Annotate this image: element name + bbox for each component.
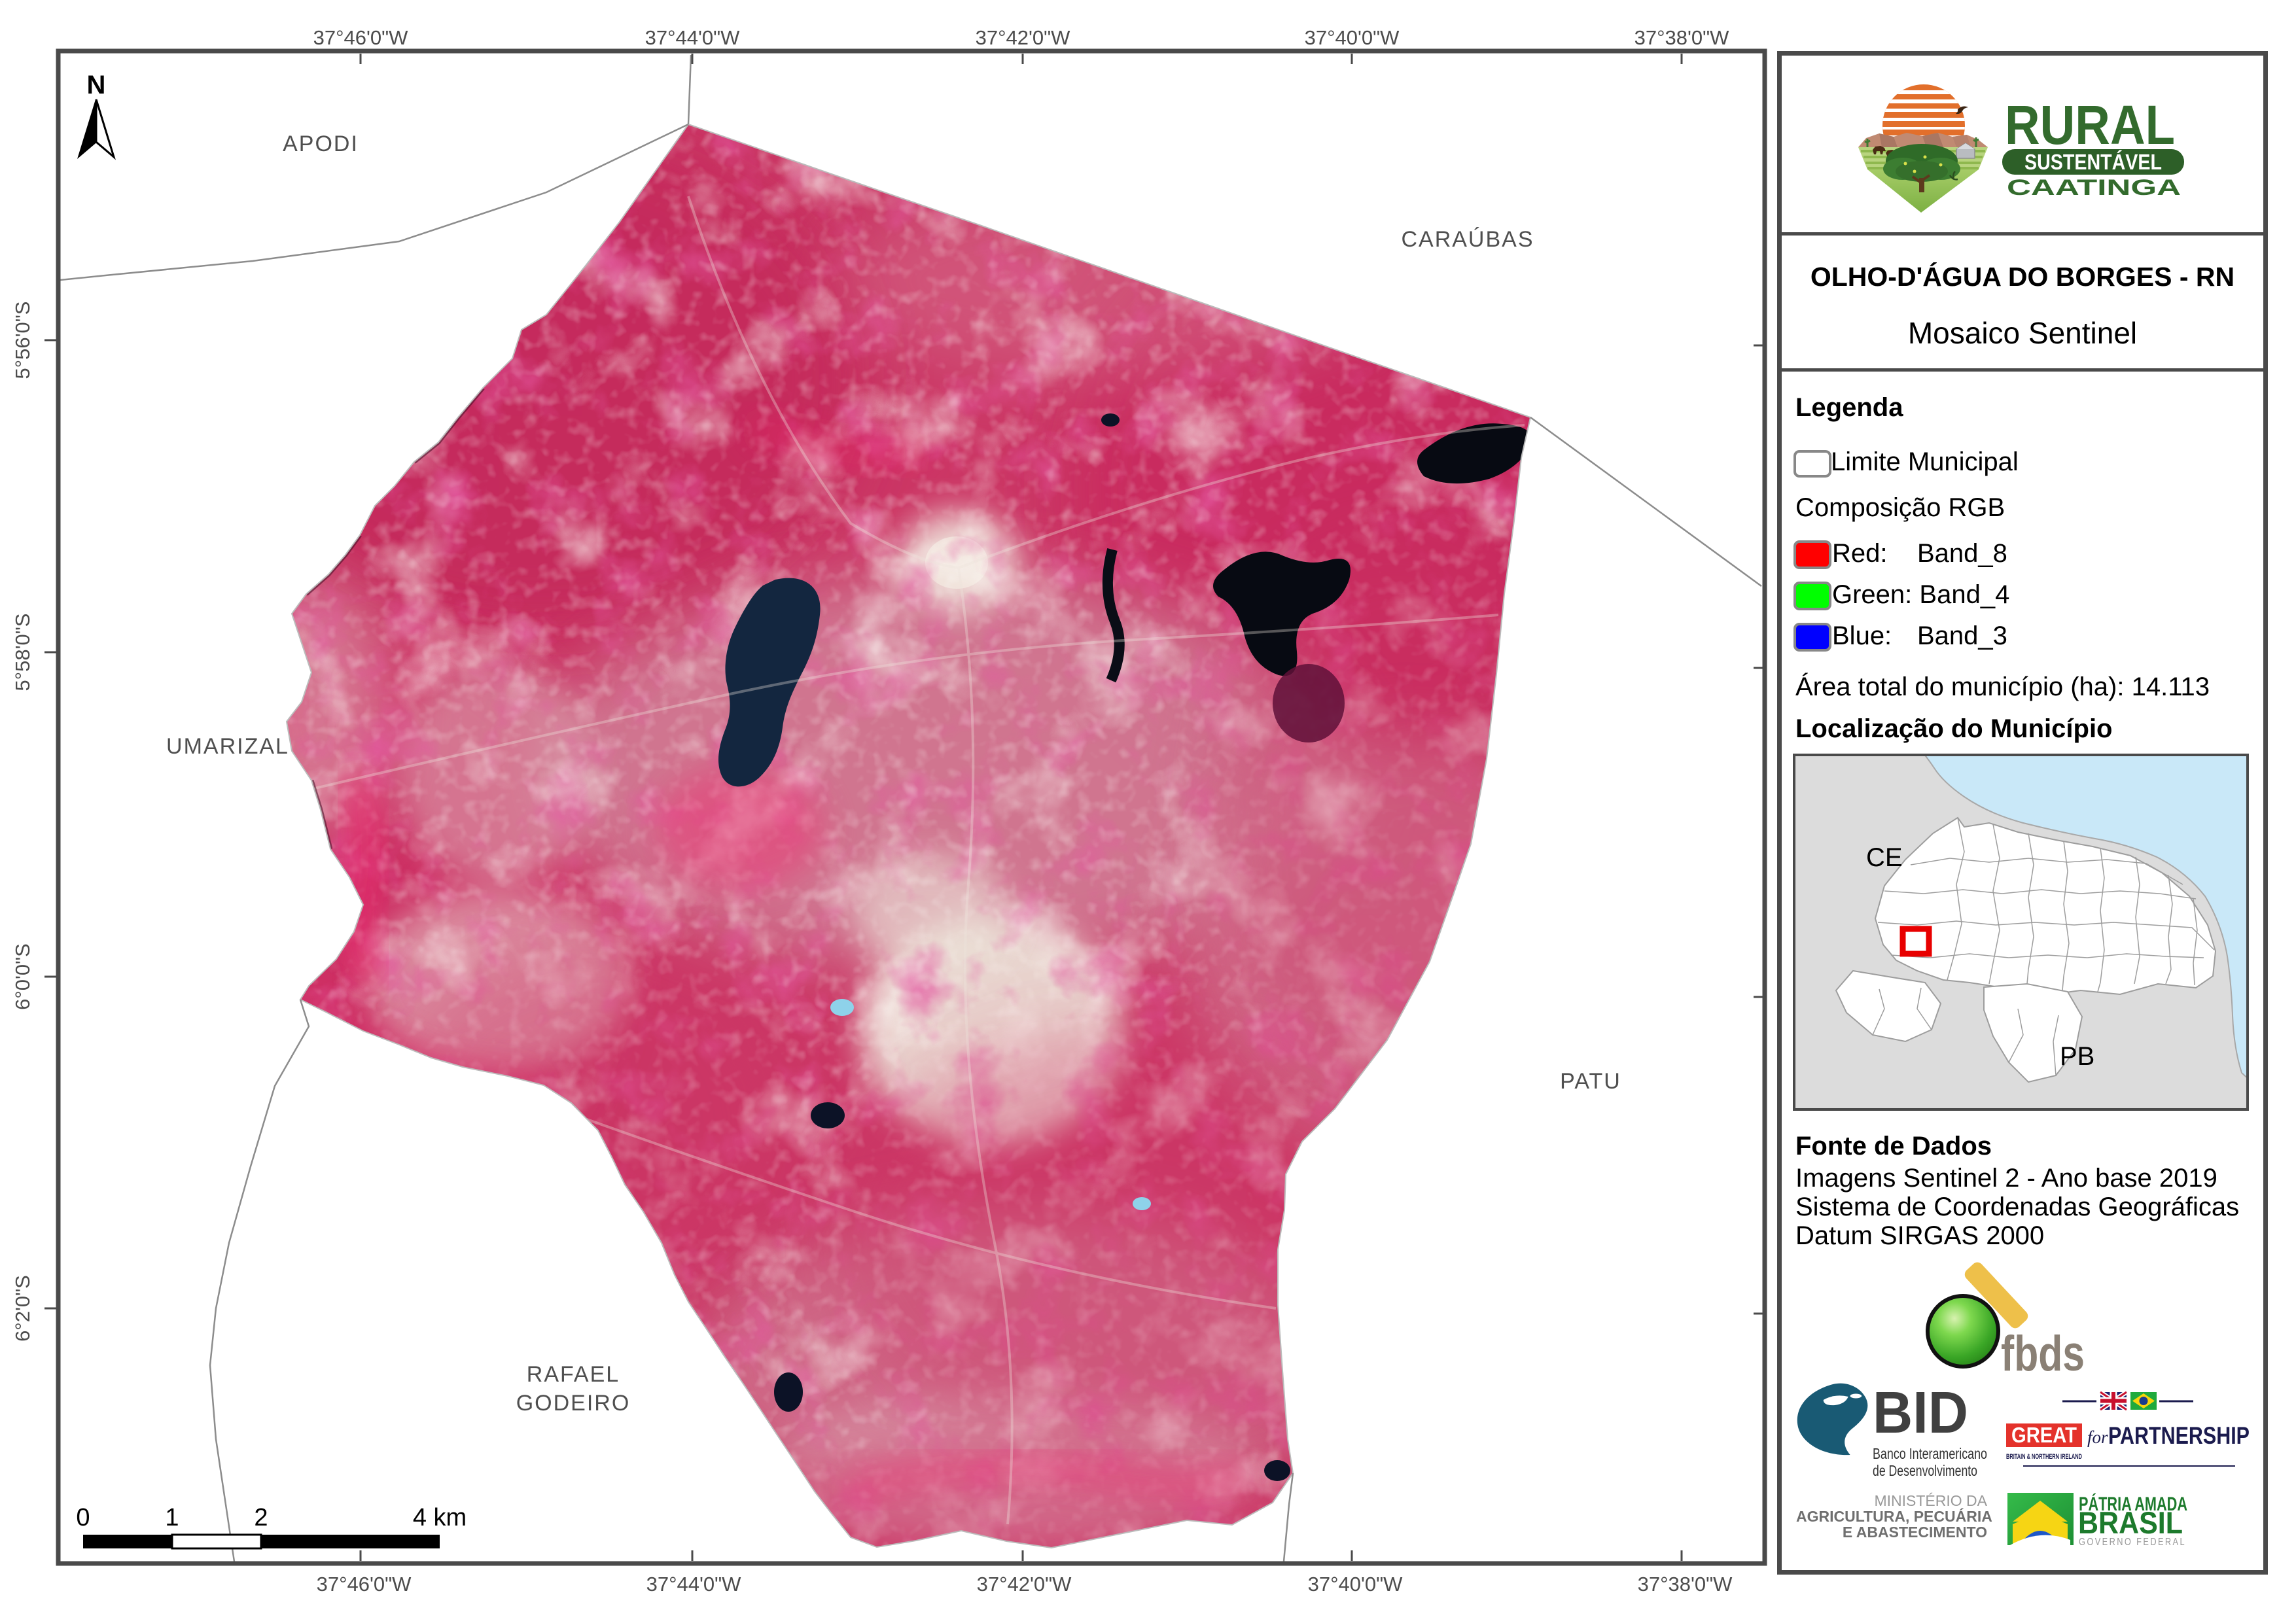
svg-text:PB: PB (2060, 1042, 2094, 1071)
svg-text:37°40'0"W: 37°40'0"W (1308, 1573, 1404, 1596)
svg-text:5°58'0"S: 5°58'0"S (11, 614, 34, 691)
svg-text:GREAT: GREAT (2011, 1423, 2077, 1447)
svg-text:37°38'0"W: 37°38'0"W (1634, 26, 1730, 49)
svg-text:37°44'0"W: 37°44'0"W (646, 1573, 742, 1596)
svg-text:for: for (2087, 1427, 2108, 1447)
svg-text:BRITAIN & NORTHERN IRELAND: BRITAIN & NORTHERN IRELAND (2006, 1453, 2082, 1461)
svg-text:CAATINGA: CAATINGA (2007, 175, 2181, 200)
svg-text:1: 1 (165, 1504, 179, 1531)
svg-text:0: 0 (76, 1504, 90, 1531)
svg-text:37°44'0"W: 37°44'0"W (645, 26, 741, 49)
svg-text:GOVERNO FEDERAL: GOVERNO FEDERAL (2079, 1537, 2186, 1548)
svg-text:37°46'0"W: 37°46'0"W (313, 26, 409, 49)
svg-text:RAFAEL: RAFAEL (527, 1362, 620, 1387)
svg-text:5°56'0"S: 5°56'0"S (11, 302, 34, 379)
svg-text:APODI: APODI (283, 131, 359, 156)
svg-text:CE: CE (1866, 843, 1903, 872)
svg-text:BRASIL: BRASIL (2078, 1505, 2183, 1540)
svg-text:37°38'0"W: 37°38'0"W (1638, 1573, 1733, 1596)
svg-text:2: 2 (254, 1504, 268, 1531)
svg-text:BID: BID (1873, 1380, 1968, 1446)
svg-text:6°0'0"S: 6°0'0"S (11, 943, 34, 1010)
svg-text:37°46'0"W: 37°46'0"W (317, 1573, 412, 1596)
svg-text:PATU: PATU (1560, 1069, 1621, 1094)
svg-text:37°40'0"W: 37°40'0"W (1305, 26, 1400, 49)
svg-text:SUSTENTÁVEL: SUSTENTÁVEL (2024, 150, 2162, 174)
svg-text:4 km: 4 km (413, 1504, 467, 1531)
svg-text:Banco Interamericano: Banco Interamericano (1873, 1445, 1987, 1462)
svg-text:RURAL: RURAL (2005, 94, 2175, 156)
svg-text:N: N (87, 71, 106, 99)
svg-text:37°42'0"W: 37°42'0"W (976, 26, 1071, 49)
svg-text:de Desenvolvimento: de Desenvolvimento (1873, 1462, 1977, 1479)
svg-text:PARTNERSHIP: PARTNERSHIP (2108, 1422, 2250, 1449)
svg-text:GODEIRO: GODEIRO (516, 1391, 631, 1416)
svg-text:6°2'0"S: 6°2'0"S (11, 1275, 34, 1342)
svg-text:37°42'0"W: 37°42'0"W (977, 1573, 1072, 1596)
svg-text:fbds: fbds (2001, 1326, 2085, 1380)
svg-text:CARAÚBAS: CARAÚBAS (1401, 227, 1534, 252)
svg-text:UMARIZAL: UMARIZAL (166, 734, 289, 759)
